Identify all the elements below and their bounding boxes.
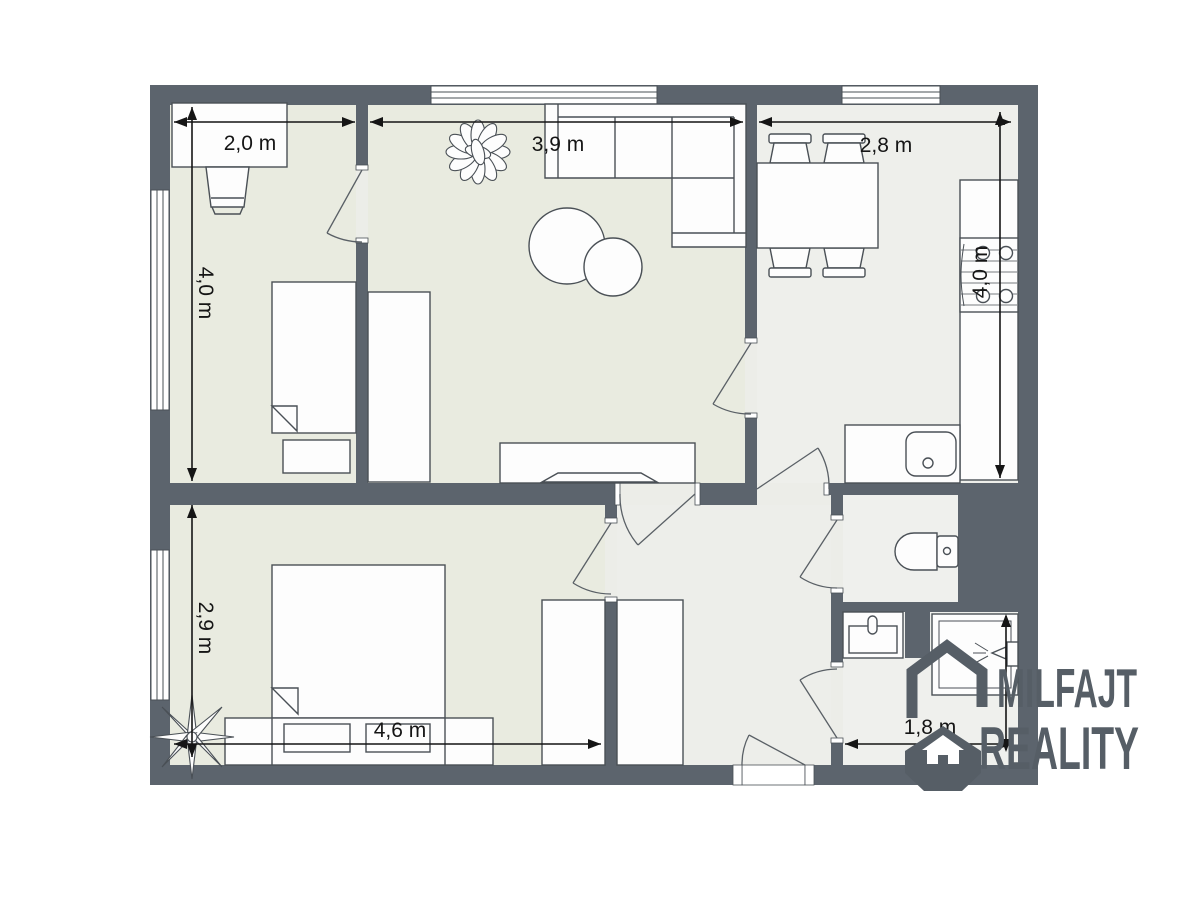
- dimension-label-bedroom-height: 2,9 m: [194, 602, 217, 655]
- wall-bedroom-hall-b: [605, 597, 617, 765]
- bed-head-band: [225, 718, 493, 765]
- window-top-kitchen: [842, 86, 940, 104]
- dining-chair: [769, 134, 811, 163]
- dimension-label-room1-height: 4,0 m: [194, 267, 217, 320]
- dimension-label-kitchen-height: 4,0 m: [969, 246, 992, 299]
- coffee-table-small: [584, 238, 642, 296]
- wall-wc-bath-divider: [831, 602, 1018, 612]
- logo-text-line1: MILFAJT: [997, 657, 1137, 719]
- wall-living-kitchen-a: [745, 105, 757, 343]
- dimension-label-living-width: 3,9 m: [532, 133, 585, 156]
- dimension-label-bedroom-width: 4,6 m: [374, 719, 427, 742]
- dining-chair: [769, 248, 811, 277]
- tv: [542, 473, 657, 482]
- tv-stand: [500, 443, 695, 483]
- washbasin: [843, 612, 903, 658]
- dining-chair: [823, 248, 865, 277]
- wall-shaft: [958, 495, 1018, 602]
- wall-living-kitchen-b: [745, 413, 757, 483]
- wardrobe-hallway: [617, 600, 683, 765]
- wall-bath-stub: [905, 612, 930, 658]
- wall-room1-living-b: [356, 243, 368, 483]
- window-left-room1: [151, 190, 169, 410]
- dimension-label-kitchen-width: 2,8 m: [860, 134, 913, 157]
- floor-plan-drawing: 2,0 m 4,0 m 3,9 m 2,8 m 4,0 m 2,9 m 4,6 …: [0, 0, 1200, 914]
- logo-house-door: [938, 755, 948, 764]
- pillow: [284, 724, 350, 752]
- wardrobe-living: [368, 292, 430, 482]
- floor-plan-page: 2,0 m 4,0 m 3,9 m 2,8 m 4,0 m 2,9 m 4,6 …: [0, 0, 1200, 914]
- toilet: [895, 533, 958, 570]
- dining-table: [757, 163, 878, 248]
- kitchen-counter: [960, 180, 1018, 480]
- wall-middle-b: [695, 483, 757, 505]
- window-left-bedroom: [151, 550, 169, 700]
- wall-bottom: [150, 765, 1038, 785]
- wall-middle-c: [829, 483, 1038, 495]
- wall-middle-a: [150, 483, 620, 505]
- under-bed-drawer: [283, 440, 350, 473]
- desk-chair: [206, 167, 249, 214]
- dimension-label-room1-width: 2,0 m: [224, 132, 277, 155]
- wall-wc-b: [831, 588, 843, 667]
- kitchen-sink: [845, 425, 960, 483]
- dining-chair: [823, 134, 865, 163]
- entry-door-opening: [742, 765, 805, 785]
- logo-text-line2: REALITY: [979, 715, 1139, 782]
- wall-room1-living-a: [356, 105, 368, 170]
- window-top-living: [431, 86, 657, 104]
- wardrobe-bedroom: [542, 600, 605, 765]
